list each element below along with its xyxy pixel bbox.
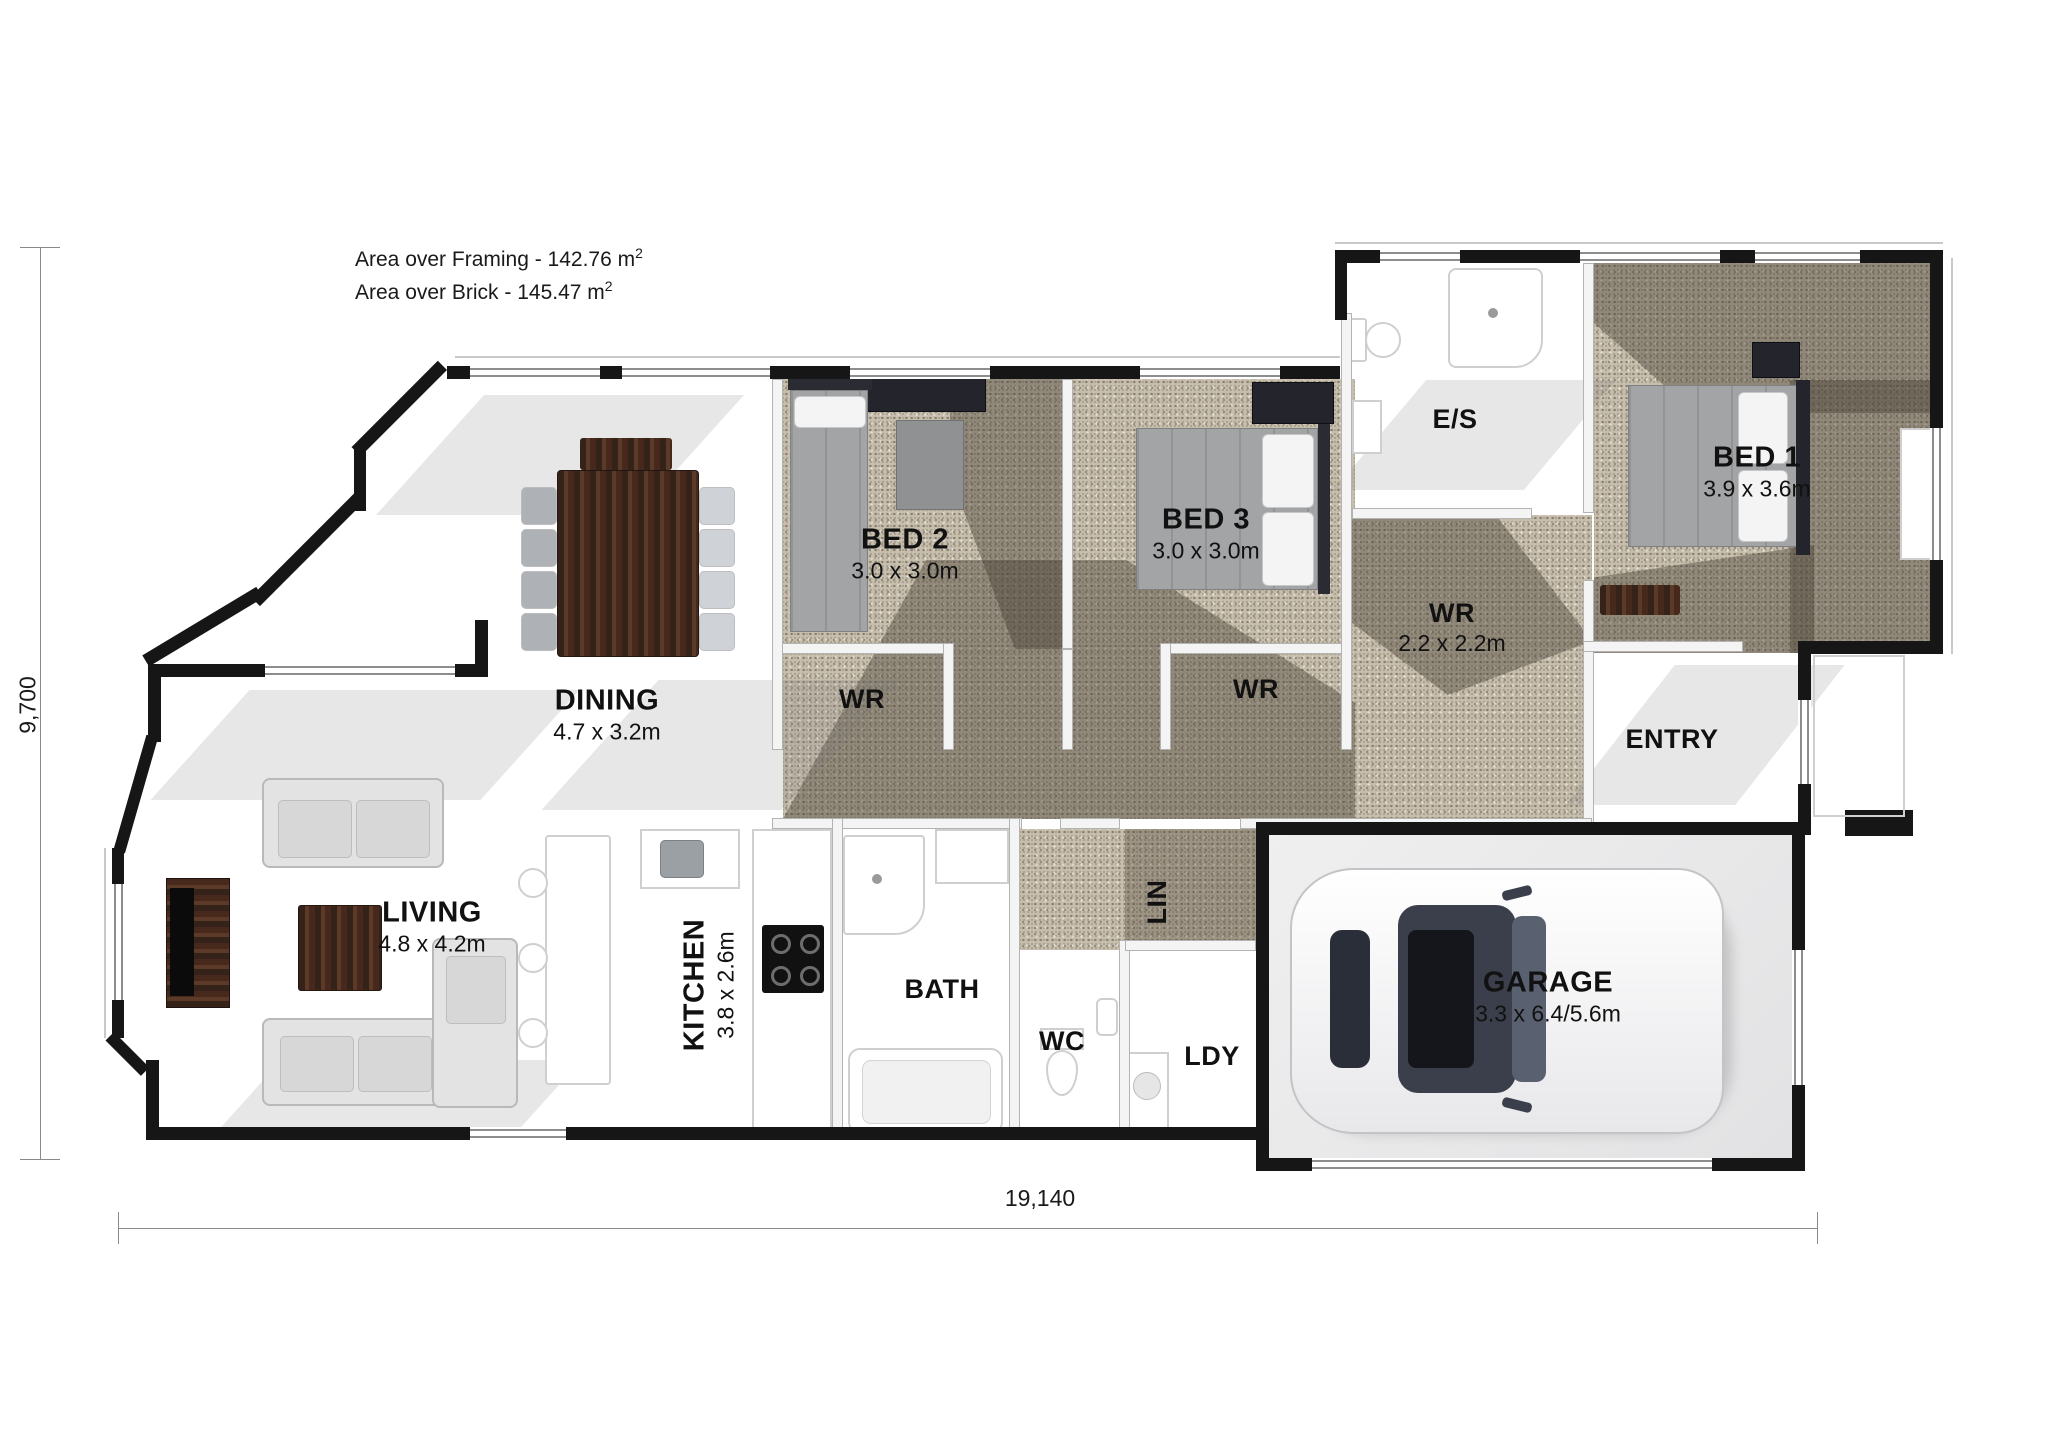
- coffee-table: [298, 905, 382, 991]
- kitchen-stool: [518, 868, 548, 898]
- window: [850, 366, 990, 379]
- bed-pillow: [1262, 434, 1314, 508]
- kitchen-island: [545, 835, 611, 1085]
- dimension-label-height: 9,700: [15, 676, 42, 734]
- room-label-ensuite: E/S: [1432, 405, 1477, 435]
- interior-wall: [772, 818, 1022, 829]
- window: [1792, 950, 1805, 1085]
- toilet-bowl: [1365, 322, 1401, 358]
- exterior-wall: [142, 587, 263, 667]
- toilet-bowl: [1046, 1050, 1078, 1096]
- bed2-dresser: [896, 420, 964, 510]
- dining-chair: [521, 571, 557, 609]
- nightstand: [1752, 342, 1800, 378]
- area-over-brick: Area over Brick - 145.47 m2: [355, 273, 643, 306]
- wardrobe: [1252, 382, 1334, 424]
- garage-door: [1312, 1158, 1712, 1171]
- dimension-tick: [118, 1212, 119, 1244]
- cooktop-burner: [771, 966, 791, 986]
- room-name: LIN: [1143, 880, 1173, 925]
- sofa-cushion: [358, 1036, 432, 1092]
- kitchen-sink: [660, 840, 704, 878]
- room-dims: 2.2 x 2.2m: [1398, 628, 1505, 657]
- exterior-wall: [1268, 822, 1805, 835]
- window: [1140, 366, 1280, 379]
- window: [622, 366, 770, 379]
- dining-chair: [521, 529, 557, 567]
- exterior-wall: [352, 361, 447, 456]
- window: [470, 366, 600, 379]
- dining-table: [557, 470, 699, 657]
- room-label-wc: WC: [1039, 1027, 1085, 1057]
- dining-buffet: [580, 438, 672, 470]
- interior-wall: [782, 643, 954, 654]
- tv-screen: [170, 888, 194, 996]
- interior-wall: [1060, 818, 1120, 829]
- room-name: LIVING: [378, 898, 485, 930]
- interior-wall: [1009, 818, 1020, 1138]
- bed-pillow: [1262, 512, 1314, 586]
- interior-wall: [1062, 379, 1073, 649]
- eave-line: [1951, 258, 1953, 654]
- bedroom-bench: [1600, 585, 1680, 615]
- dimension-line-horizontal: [118, 1228, 1818, 1229]
- room-dims: 3.0 x 3.0m: [1152, 537, 1259, 566]
- exterior-wall: [1256, 822, 1269, 1171]
- exterior-wall: [148, 664, 161, 742]
- cooktop-burner: [771, 934, 791, 954]
- room-name: BED 3: [1152, 505, 1259, 537]
- room-dims: 4.7 x 3.2m: [553, 718, 660, 747]
- dimension-tick: [20, 247, 60, 248]
- room-name: E/S: [1432, 405, 1477, 435]
- eave-line: [104, 848, 106, 1038]
- room-dims: 3.9 x 3.6m: [1703, 475, 1810, 504]
- eave-line: [455, 356, 1340, 358]
- room-name: DINING: [553, 686, 660, 718]
- bed-pillow: [794, 396, 866, 428]
- area-annotation: Area over Framing - 142.76 m2 Area over …: [355, 240, 643, 306]
- interior-wall: [832, 818, 843, 1138]
- room-label-kitchen: KITCHEN 3.8 x 2.6m: [680, 919, 741, 1051]
- room-name: BATH: [905, 975, 980, 1005]
- ensuite-vanity: [1352, 400, 1382, 454]
- interior-wall: [1583, 641, 1743, 652]
- room-name: WR: [839, 685, 885, 715]
- room-name: WR: [1233, 675, 1279, 705]
- dimension-tick: [1817, 1212, 1818, 1244]
- room-label-wr-master: WR 2.2 x 2.2m: [1398, 599, 1505, 657]
- interior-wall: [1341, 313, 1352, 750]
- dining-chair: [699, 487, 735, 525]
- dining-chair: [521, 613, 557, 651]
- interior-wall: [1062, 649, 1073, 750]
- cooktop-burner: [800, 966, 820, 986]
- area-over-framing: Area over Framing - 142.76 m2: [355, 240, 643, 273]
- bed-headboard: [1318, 424, 1330, 594]
- bath-vanity: [935, 829, 1009, 884]
- kitchen-stool: [518, 943, 548, 973]
- shower: [1448, 268, 1543, 368]
- sofa-cushion: [278, 800, 352, 858]
- sofa-cushion: [356, 800, 430, 858]
- front-door: [1798, 700, 1811, 784]
- dining-chair: [699, 613, 735, 651]
- dimension-tick: [20, 1159, 60, 1160]
- car-rear-window: [1330, 930, 1370, 1068]
- room-label-bed2: BED 2 3.0 x 3.0m: [851, 525, 958, 586]
- shower-drain: [872, 874, 882, 884]
- window: [112, 884, 125, 1002]
- room-name: BED 2: [851, 525, 958, 557]
- room-dims: 4.8 x 4.2m: [378, 930, 485, 959]
- exterior-wall: [251, 491, 366, 606]
- exterior-wall: [113, 735, 158, 854]
- room-name: LDY: [1184, 1042, 1240, 1072]
- car-sunroof: [1408, 930, 1474, 1068]
- bed-headboard: [788, 378, 872, 390]
- dimension-label-width: 19,140: [1005, 1185, 1075, 1212]
- room-label-garage: GARAGE 3.3 x 6.4/5.6m: [1475, 968, 1621, 1029]
- room-label-bed3: BED 3 3.0 x 3.0m: [1152, 505, 1259, 566]
- room-label-living: LIVING 4.8 x 4.2m: [378, 898, 485, 959]
- laundry-tub-bowl: [1133, 1072, 1161, 1100]
- room-dims: 3.8 x 2.6m: [712, 919, 741, 1051]
- carpet-corridor: [1020, 829, 1125, 950]
- sliding-door: [470, 1127, 566, 1140]
- shower: [843, 835, 925, 935]
- room-name: ENTRY: [1625, 725, 1718, 755]
- room-label-entry: ENTRY: [1625, 725, 1718, 755]
- room-label-bed1: BED 1 3.9 x 3.6m: [1703, 443, 1810, 504]
- room-name: WC: [1039, 1027, 1085, 1057]
- room-label-laundry: LDY: [1184, 1042, 1240, 1072]
- eave-line: [1335, 242, 1943, 244]
- room-label-bath: BATH: [905, 975, 980, 1005]
- window: [1930, 428, 1943, 560]
- room-dims: 3.3 x 6.4/5.6m: [1475, 1000, 1621, 1029]
- interior-wall: [943, 643, 954, 750]
- room-label-wr-bed2: WR: [839, 685, 885, 715]
- wc-basin: [1096, 998, 1118, 1036]
- shower-drain: [1488, 308, 1498, 318]
- exterior-wall: [580, 1127, 1268, 1140]
- window: [1380, 250, 1460, 263]
- floor-plan: Area over Framing - 142.76 m2 Area over …: [0, 0, 2048, 1448]
- room-label-linen: LIN: [1143, 880, 1173, 925]
- room-name: WR: [1398, 599, 1505, 629]
- exterior-wall: [112, 848, 124, 886]
- window: [1755, 250, 1860, 263]
- room-name: BED 1: [1703, 443, 1810, 475]
- exterior-wall: [1798, 641, 1943, 654]
- exterior-wall: [1335, 250, 1347, 320]
- interior-wall: [1125, 940, 1256, 951]
- interior-wall: [1160, 643, 1350, 654]
- cooktop-burner: [800, 934, 820, 954]
- kitchen-stool: [518, 1018, 548, 1048]
- dining-chair: [699, 571, 735, 609]
- interior-wall: [1352, 508, 1532, 519]
- room-dims: 3.0 x 3.0m: [851, 557, 958, 586]
- dining-chair: [521, 487, 557, 525]
- porch-outline: [1813, 655, 1905, 817]
- interior-wall: [1119, 940, 1130, 1138]
- interior-wall: [1583, 580, 1594, 829]
- interior-wall: [772, 379, 783, 750]
- exterior-wall: [106, 1032, 150, 1076]
- dining-chair: [699, 529, 735, 567]
- room-label-dining: DINING 4.7 x 3.2m: [553, 686, 660, 747]
- interior-wall: [1160, 643, 1171, 750]
- sofa-cushion: [446, 956, 506, 1024]
- window: [265, 664, 455, 677]
- sofa-cushion: [280, 1036, 354, 1092]
- exterior-wall: [475, 620, 488, 677]
- room-label-wr-bed3: WR: [1233, 675, 1279, 705]
- room-name: KITCHEN: [680, 919, 712, 1051]
- interior-wall: [1583, 263, 1594, 513]
- bathtub-inner: [862, 1060, 991, 1124]
- room-name: GARAGE: [1475, 968, 1621, 1000]
- window: [1580, 250, 1720, 263]
